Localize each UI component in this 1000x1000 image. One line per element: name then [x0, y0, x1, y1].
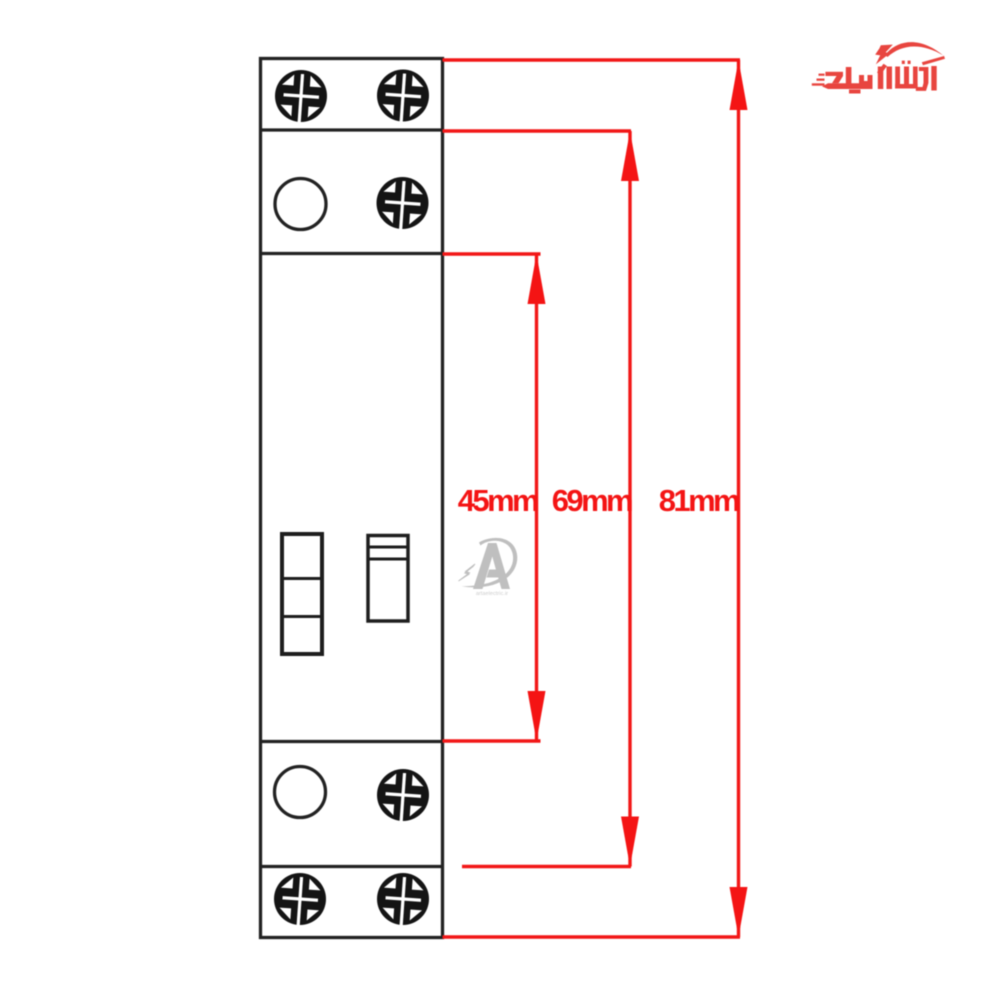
svg-text:artaelectric.ir: artaelectric.ir — [476, 591, 508, 597]
svg-text:81mm: 81mm — [659, 483, 739, 518]
svg-text:69mm: 69mm — [552, 483, 632, 518]
svg-text:45mm: 45mm — [458, 483, 538, 518]
